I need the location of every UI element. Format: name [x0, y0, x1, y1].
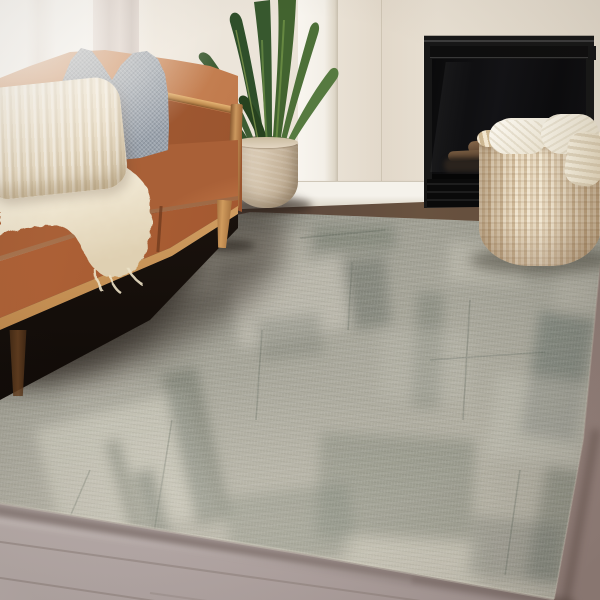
photo-vignette	[0, 0, 600, 600]
living-room-photo	[0, 0, 600, 600]
